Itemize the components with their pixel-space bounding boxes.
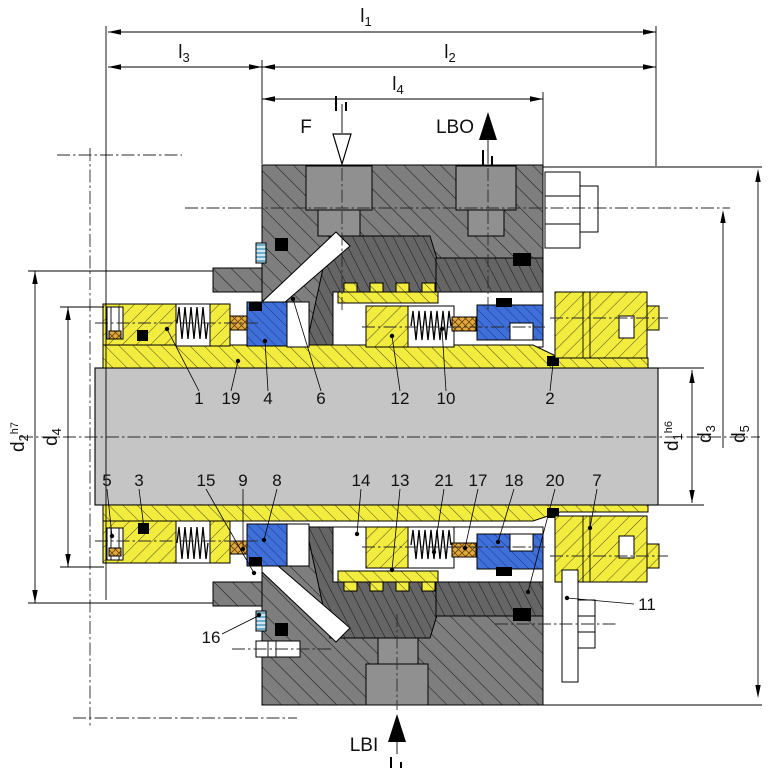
callout-label: 6 [316,389,325,408]
shaft-body [95,368,658,505]
clamp-pocket-lower [619,536,634,558]
packing-upper-outboard [452,317,476,331]
dim-label-l1: l1 [360,6,371,29]
gland-flange-plate [562,570,578,682]
pumping-tooth [422,582,435,591]
callout-label: 18 [505,471,524,490]
callout-label: 13 [391,471,410,490]
oring-lower-left [275,623,288,636]
drawing-canvas: l1 l3 l2 l4 d2h7 d4 d1h6 d3 d5 F LBO [0,0,768,768]
clamp-pocket-upper [619,316,634,338]
spring-retainer-lower-inboard [210,521,230,563]
mating-ring-lower-inboard [287,524,309,566]
flush-arrow-icon [333,134,351,164]
callout-label: 21 [435,471,454,490]
callout-label: 7 [592,471,601,490]
packing-lower-outboard [452,543,476,557]
callout-label: 5 [102,471,111,490]
dim-label-l3: l3 [178,42,189,65]
barrier-out-arrow-icon [479,112,497,140]
callout-label: 16 [202,628,221,647]
pumping-ring-upper [338,292,438,303]
flush-port-bore [306,166,372,210]
upper-seal-assembly [103,283,659,368]
callout-label: 14 [352,471,371,490]
gland-plate-and-bolt-lower [562,570,595,682]
barrier-in-label: LBI [350,735,379,756]
callout-label: 15 [197,471,216,490]
flush-port-counterbore [318,210,360,236]
shaft [95,368,658,505]
oring-upper-left [275,238,288,251]
bolt-head-upper [545,172,580,248]
barrier-out-port-bore [456,166,516,210]
gland-spigot-upper [213,268,262,292]
callout-label: 2 [545,389,554,408]
callout-label: 3 [134,471,143,490]
callout-label: 4 [263,389,272,408]
oring-upper-right [513,253,531,266]
spring-retainer-lower-outboard [366,527,410,568]
gland-bolt-upper [545,172,598,248]
callout-label: 10 [437,389,456,408]
dim-label-d3: d3 [695,425,718,443]
dim-label-d5: d5 [729,425,752,443]
barrier-out-label: LBO [436,117,474,138]
gland-spigot-lower [213,582,262,606]
set-screw-tip-upper [109,331,121,339]
face-oring-lower-outboard [496,567,512,576]
callout-label: 8 [272,471,281,490]
bolt-shank-upper [580,186,598,232]
dim-label-l4: l4 [392,74,403,97]
dim-label-d2: d2h7 [8,422,31,452]
pumping-ring-lower [338,571,438,582]
collar-oring-upper [137,330,148,341]
mating-ring-upper-outboard [510,323,533,340]
face-oring-lower-inboard [249,557,262,566]
pumping-tooth [396,582,409,591]
pumping-tooth [422,283,435,292]
spring-retainer-upper-outboard [366,306,410,347]
dim-label-d1: d1h6 [662,421,685,451]
pumping-tooth [344,582,357,591]
gland-gasket-upper [256,243,266,263]
face-oring-upper-inboard [249,302,262,311]
barrier-out-counterbore [468,210,504,236]
oring-lower-right [513,608,531,621]
mating-ring-lower-outboard [510,534,533,551]
dim-label-d4: d4 [41,428,64,446]
seal-cross-section-drawing: l1 l3 l2 l4 d2h7 d4 d1h6 d3 d5 F LBO [0,0,768,768]
pumping-tooth [344,283,357,292]
flush-port-label: F [300,117,312,138]
callout-label: 19 [222,389,241,408]
callout-label: 9 [238,471,247,490]
callout-label: 12 [391,389,410,408]
pumping-tooth [370,582,383,591]
barrier-in-counterbore [378,638,418,664]
callout-label: 17 [469,471,488,490]
dim-label-l2: l2 [444,42,455,65]
callout-label: 11 [638,595,656,614]
barrier-in-arrow-icon [388,714,406,742]
face-oring-upper-outboard [496,298,512,307]
pumping-tooth [396,283,409,292]
spring-retainer-upper-inboard [210,304,230,346]
callout-label: 1 [194,389,203,408]
set-screw-tip-lower [109,548,121,556]
callout-label: 20 [546,471,565,490]
pumping-tooth [370,283,383,292]
